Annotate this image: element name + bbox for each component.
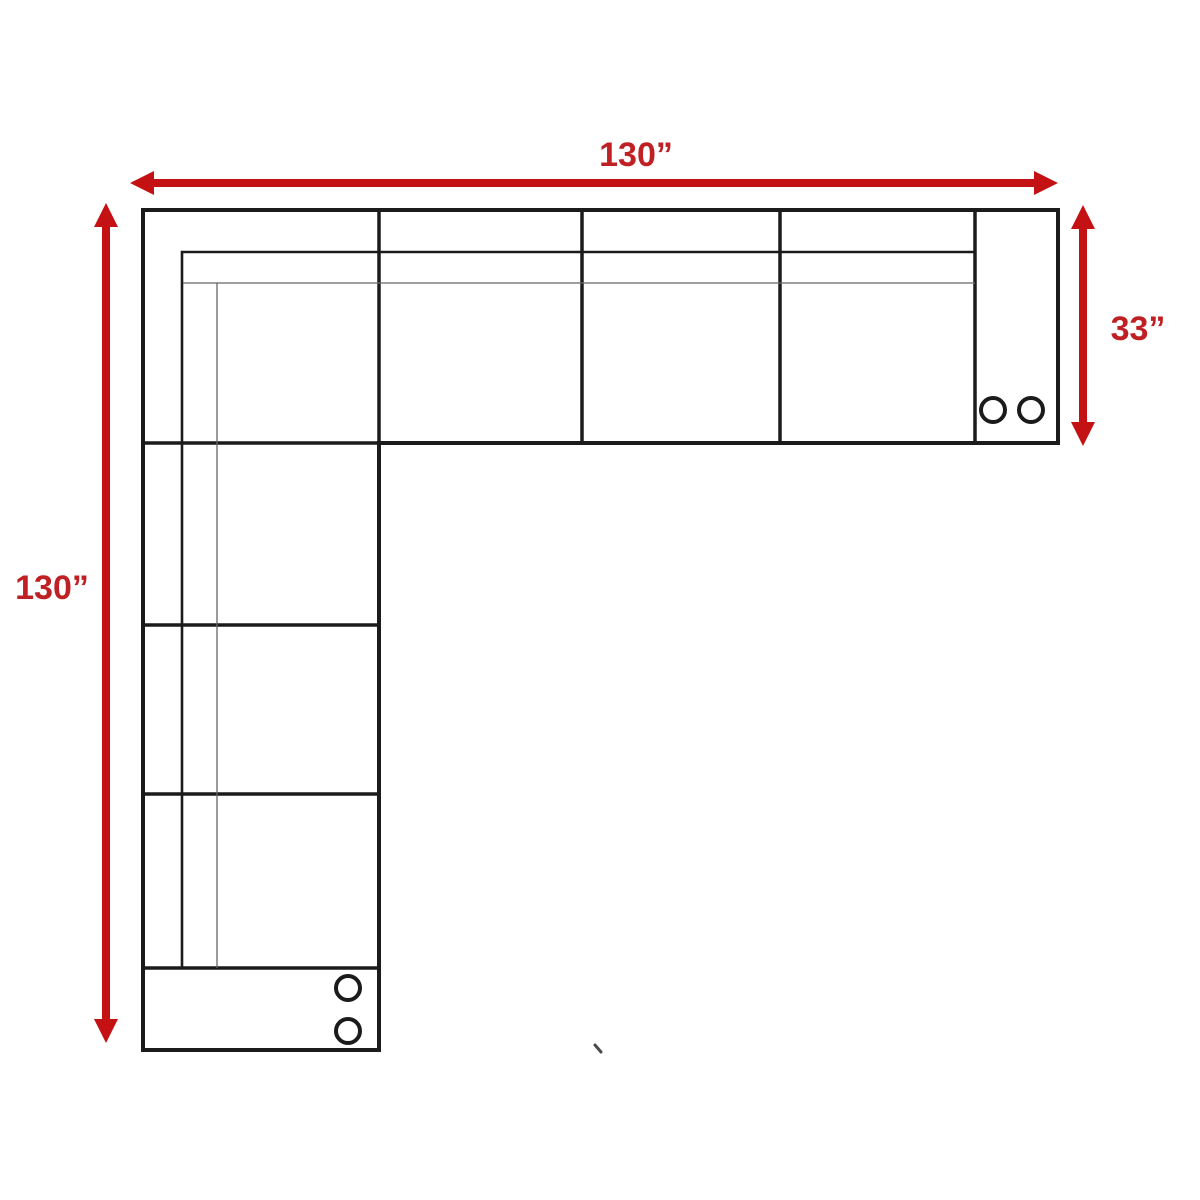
stray-mark (595, 1045, 601, 1052)
connector-circle (336, 976, 360, 1000)
arrow-up-head-icon (1071, 205, 1095, 229)
arrow-up-head-icon (94, 203, 118, 227)
height-dimension-label: 130” (0, 571, 104, 605)
arrow-down-head-icon (94, 1019, 118, 1043)
sectional-sofa-diagram (0, 0, 1200, 1200)
connector-circle (336, 1019, 360, 1043)
width-dimension-label: 130” (556, 138, 716, 172)
backrest-line (182, 252, 975, 968)
sofa-outline (143, 210, 1058, 1050)
width-dimension-arrow (130, 171, 1058, 195)
height-dimension-arrow (94, 203, 118, 1043)
diagram-canvas: 130” 130” 33” (0, 0, 1200, 1200)
connector-circle (981, 398, 1005, 422)
arrow-right-head-icon (1034, 171, 1058, 195)
depth-dimension-label: 33” (1086, 312, 1190, 346)
connector-circle (1019, 398, 1043, 422)
arrow-left-head-icon (130, 171, 154, 195)
sofa-plan (143, 210, 1058, 1052)
arrow-down-head-icon (1071, 422, 1095, 446)
